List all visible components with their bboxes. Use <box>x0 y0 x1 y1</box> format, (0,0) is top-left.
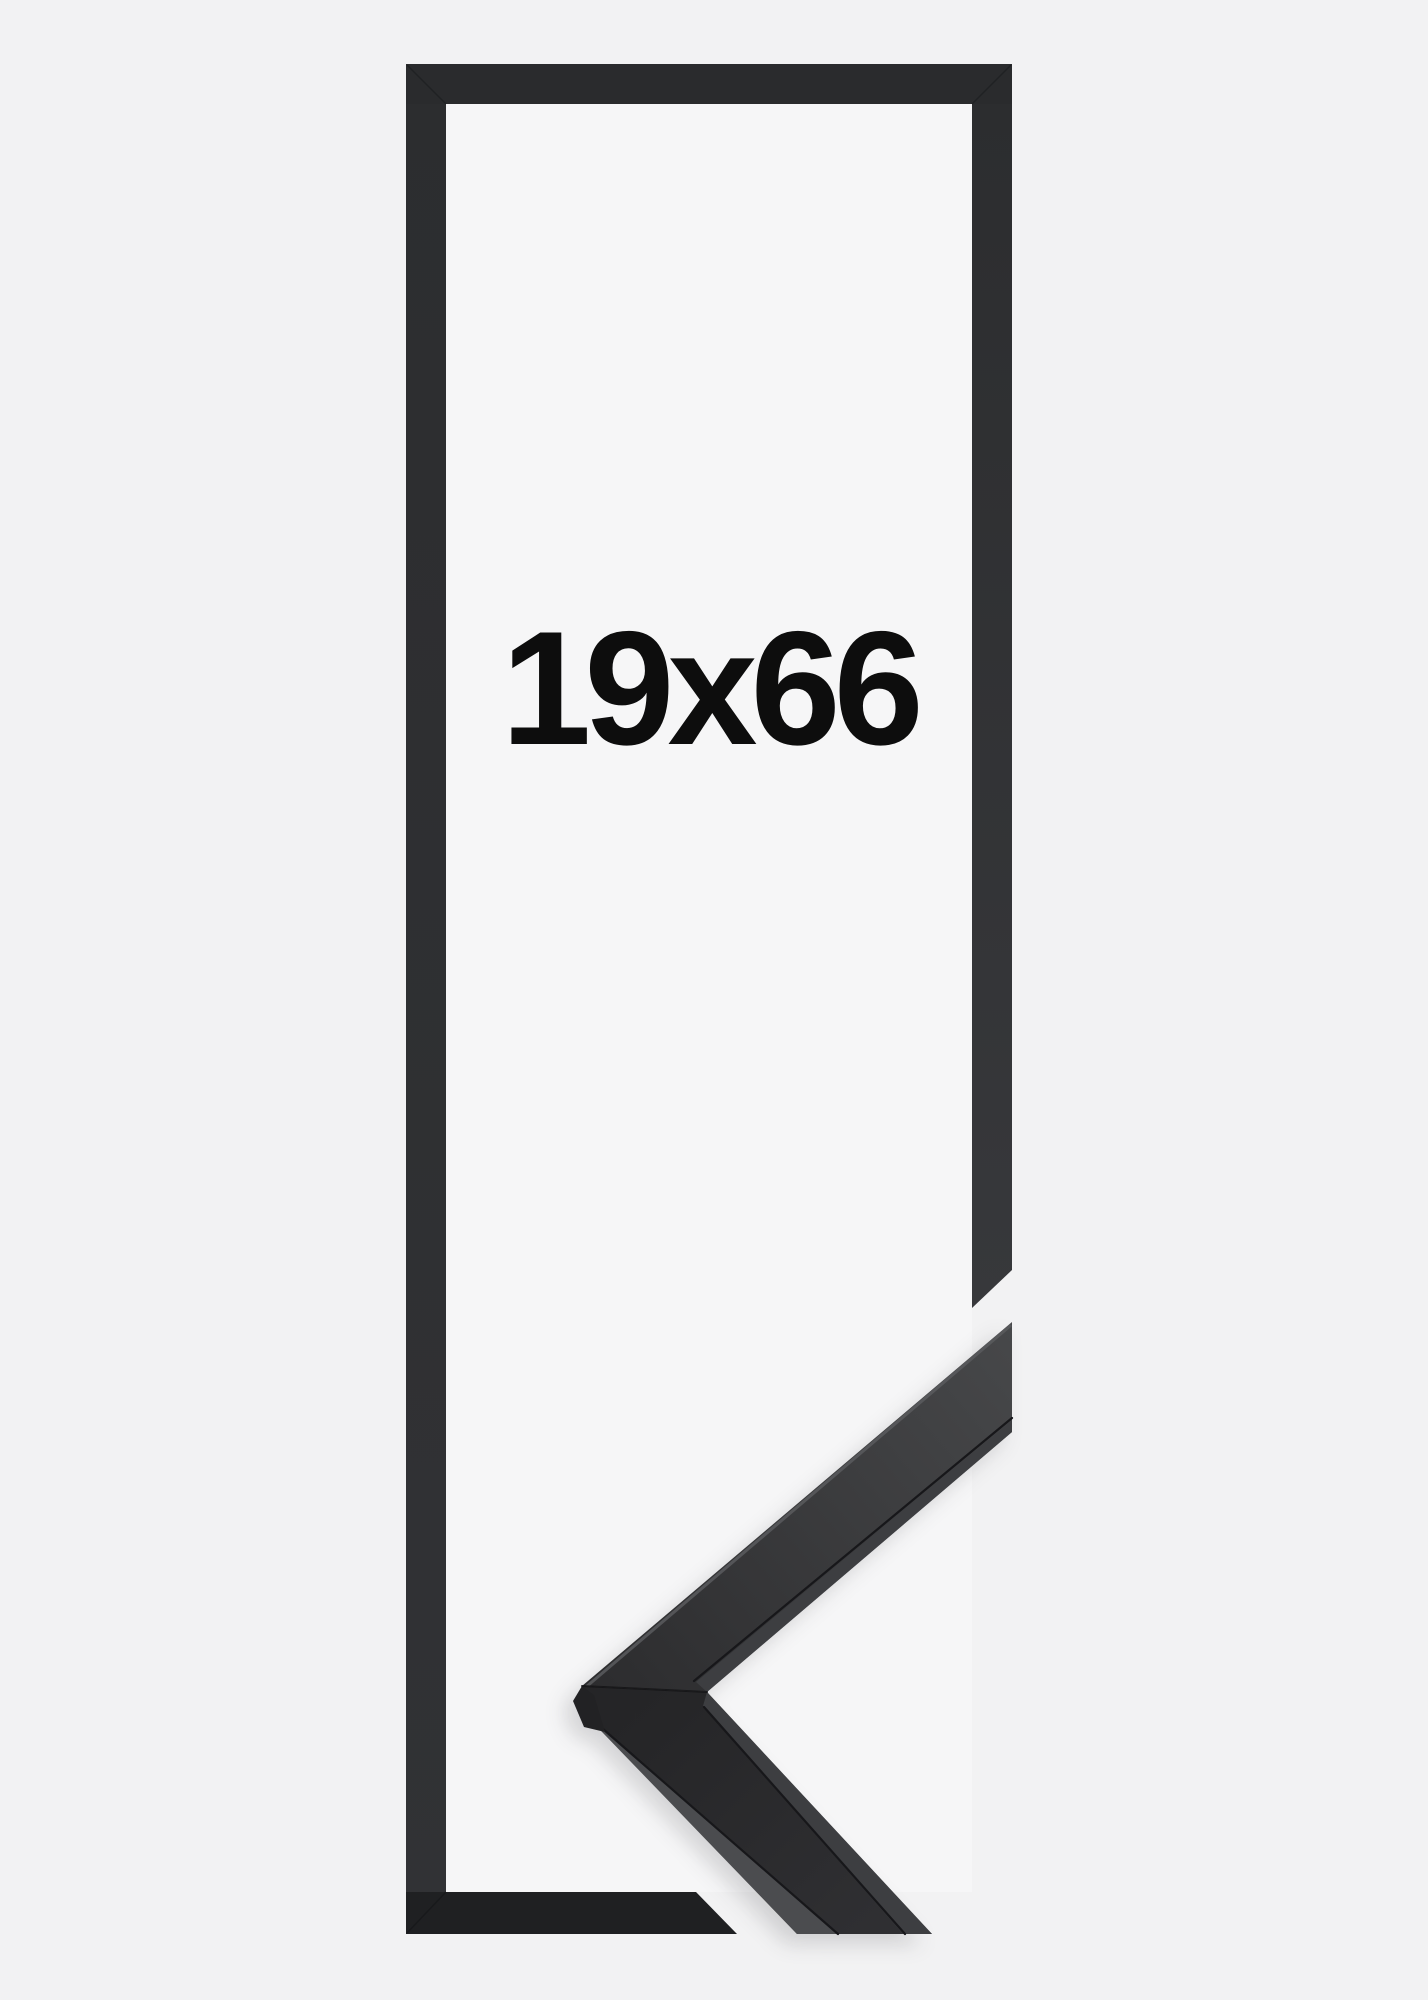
frame-bottom-bar <box>406 1892 737 1934</box>
size-label: 19x66 <box>501 598 918 779</box>
frame-product-canvas: 19x66 <box>0 0 1428 2000</box>
frame-left-bar <box>406 64 446 1934</box>
frame-top-bar <box>406 64 1012 104</box>
frame-product-image: 19x66 <box>0 0 1428 2000</box>
frame-right-bar <box>972 64 1012 1308</box>
